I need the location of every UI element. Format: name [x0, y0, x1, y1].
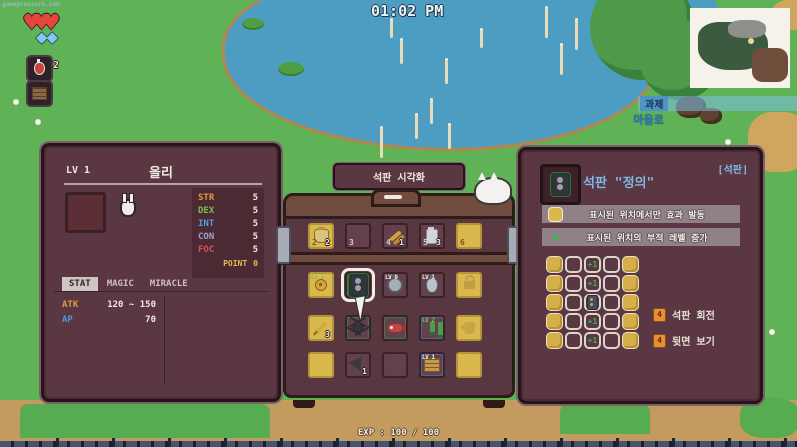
 — [464, 281, 475, 289]
effect-row: 표시된 위치에서만 효과 발동 — [542, 205, 740, 223]
pattern-cell-empty — [603, 256, 620, 273]
inventory-slot-glove[interactable] — [456, 315, 482, 341]
inventory-slot[interactable] — [456, 352, 482, 378]
 — [352, 324, 364, 333]
stat-value: 5 — [253, 218, 258, 231]
reed — [445, 60, 448, 84]
green-dot-icon — [553, 235, 558, 240]
pattern-cell-marked — [622, 256, 639, 273]
tablet-title: 석판 "정의" — [583, 172, 654, 191]
item-level-badge: LV 1 — [311, 274, 323, 281]
stat-row: STR5 — [198, 192, 258, 205]
exp-tick — [392, 438, 395, 447]
crate-slot-button[interactable] — [26, 80, 53, 107]
item-count: 1 — [399, 238, 404, 247]
exp-tick — [280, 438, 283, 447]
view-back-button[interactable]: 4뒷면 보기 — [653, 333, 715, 348]
reed — [480, 30, 483, 48]
pet-rabbit-sprite — [120, 199, 136, 217]
item-level-badge: LV 1 — [422, 274, 434, 281]
tablet-icon — [551, 173, 570, 196]
minimap — [690, 8, 790, 88]
exp-bar — [0, 441, 797, 447]
pattern-cell-marked — [546, 294, 563, 311]
inventory-slot[interactable] — [308, 352, 334, 378]
exp-label: EXP : 100 / 100 — [0, 428, 797, 438]
 — [464, 322, 475, 334]
keybind-icon: 4 — [653, 308, 666, 322]
inventory-row: 3LV 2 — [308, 315, 482, 341]
inventory-row: LV 1LV 0LV 1 — [308, 272, 482, 298]
stat-label: DEX — [198, 205, 214, 218]
reed — [380, 128, 383, 158]
reed — [415, 115, 418, 139]
reed — [545, 8, 548, 38]
stat-row: INT5 — [198, 218, 258, 231]
inventory-slot-boots[interactable]: LV 2 — [419, 315, 445, 341]
tab-miracle[interactable]: MIRACLE — [143, 277, 195, 291]
pattern-cell-marked — [546, 313, 563, 330]
attribute-row: AP70 — [62, 313, 156, 328]
pattern-cell-marked — [546, 332, 563, 349]
pattern-cell-marked — [546, 275, 563, 292]
 — [388, 324, 402, 332]
quest-objective: 마을로 — [633, 111, 663, 127]
item-level-badge: LV 1 — [422, 354, 434, 361]
reed — [390, 20, 393, 38]
tab-stat[interactable]: STAT — [62, 277, 98, 291]
effect-icon-wrap — [542, 235, 568, 240]
inventory-slot-fish[interactable] — [382, 315, 408, 341]
inventory-slot-arrows[interactable]: 41 — [382, 223, 408, 249]
item-count: 3 — [436, 238, 441, 247]
inventory-slot[interactable] — [382, 352, 408, 378]
divider — [164, 296, 165, 384]
inventory-slot-jar[interactable]: 53 — [419, 223, 445, 249]
minimap-dirt — [752, 48, 788, 82]
exp-tick — [616, 438, 619, 447]
inventory-slot-pouch[interactable]: 22 — [308, 223, 334, 249]
pattern-cell-empty — [603, 294, 620, 311]
reed — [560, 45, 563, 75]
exp-tick — [672, 438, 675, 447]
attribute-value: 70 — [145, 313, 156, 328]
stat-label: STR — [198, 192, 214, 205]
chest-handle — [371, 189, 421, 207]
lilypad — [278, 62, 304, 76]
tablet-item-icon-box — [540, 164, 581, 205]
plus-one-label: +1 — [588, 260, 598, 269]
exp-tick — [336, 438, 339, 447]
divider — [64, 183, 262, 185]
watermark: gamepressure.com — [2, 1, 60, 8]
attributes-area: ATK120 ~ 150AP70 — [54, 291, 268, 392]
pattern-cell-empty — [565, 256, 582, 273]
exp-tick — [560, 438, 563, 447]
point-label: POINT — [223, 257, 247, 270]
attribute-row: ATK120 ~ 150 — [62, 298, 156, 313]
tab-magic[interactable]: MAGIC — [100, 277, 141, 291]
reed — [430, 100, 433, 124]
attribute-value: 120 ~ 150 — [107, 298, 156, 313]
pattern-cell-empty — [565, 332, 582, 349]
slot-hotkey: 3 — [349, 238, 354, 247]
effect-text: 표시된 위치에서만 효과 발동 — [568, 208, 740, 221]
pattern-cell-empty — [603, 275, 620, 292]
exp-tick — [784, 438, 787, 447]
lilypad — [242, 18, 264, 30]
lock-icon — [458, 274, 480, 296]
item-count: 1 — [362, 367, 367, 376]
chest-foot — [483, 400, 505, 408]
yellow-slot-icon — [548, 207, 563, 222]
pattern-cell-tablet — [584, 294, 601, 311]
slot-hotkey: 4 — [386, 238, 391, 247]
stat-value: 5 — [253, 231, 258, 244]
inventory-slot-trinket[interactable]: LV 1 — [308, 272, 334, 298]
stat-value: 5 — [253, 192, 258, 205]
slot-hotkey: 6 — [460, 238, 465, 247]
reed — [448, 125, 451, 149]
item-level-badge: LV 0 — [385, 274, 397, 281]
inventory-slot[interactable]: 6 — [456, 223, 482, 249]
stat-label: CON — [198, 231, 214, 244]
stats-box: STR5DEX5INT5CON5FOC5 POINT 0 — [192, 188, 264, 278]
effect-row: 표시된 위치의 부적 레벨 증가 — [542, 228, 740, 246]
stat-row: FOC5 — [198, 244, 258, 257]
minimap-mountain — [728, 20, 766, 38]
exp-tick — [448, 438, 451, 447]
exp-tick — [728, 438, 731, 447]
tablet-detail-panel: 석판 "정의" [석판] 표시된 위치에서만 효과 발동표시된 위치의 부적 레… — [518, 147, 763, 404]
stat-label: FOC — [198, 244, 214, 257]
plus-one-label: +1 — [588, 317, 598, 326]
chest-foot — [293, 400, 315, 408]
inventory-slot-feather[interactable]: 3 — [308, 315, 334, 341]
character-name: 올리 — [44, 162, 278, 181]
button-label: 뒷면 보기 — [672, 333, 715, 348]
minimap-player-dot — [748, 38, 754, 44]
pattern-cell-empty — [603, 313, 620, 330]
slot-hotkey: 5 — [423, 238, 428, 247]
chest-clasp-left — [276, 226, 291, 264]
chest-divider — [280, 252, 518, 265]
stat-label: INT — [198, 218, 214, 231]
game-screen: gamepressure.com ♥♥♥ ◆◆ 2 01:02 PM 과제 마을… — [0, 0, 797, 447]
stat-value: 5 — [253, 205, 258, 218]
inventory-slot-arrowhead[interactable]: 1 — [345, 352, 371, 378]
inventory-slot-crate[interactable]: LV 1 — [419, 352, 445, 378]
inventory-slot-tablet[interactable] — [345, 272, 371, 298]
pattern-cell-plus: +1 — [584, 275, 601, 292]
stat-row: DEX5 — [198, 205, 258, 218]
character-panel: LV 1 올리 STR5DEX5INT5CON5FOC5 POINT 0 STA… — [41, 143, 281, 402]
pattern-cell-empty — [565, 313, 582, 330]
inventory-row: 1LV 1 — [308, 352, 482, 378]
 — [349, 274, 368, 297]
effect-icon-wrap — [542, 207, 568, 222]
pattern-cell-marked — [622, 275, 639, 292]
exp-tick — [168, 438, 171, 447]
cat-sprite — [474, 177, 512, 205]
crate-icon — [32, 87, 47, 100]
pattern-cell-plus: +1 — [584, 313, 601, 330]
reed — [575, 20, 578, 50]
point-value: 0 — [253, 257, 258, 270]
reed — [400, 40, 403, 64]
pattern-cell-plus: +1 — [584, 256, 601, 273]
pattern-cell-marked — [622, 313, 639, 330]
game-clock: 01:02 PM — [371, 2, 471, 20]
attribute-label: ATK — [62, 298, 78, 313]
tablet-icon — [347, 274, 369, 296]
chest-inventory: 22341536LV 1LV 0LV 13LV 21LV 1 — [283, 193, 515, 402]
exp-tick — [56, 438, 59, 447]
pattern-cell-empty — [565, 275, 582, 292]
potion-slot-button[interactable] — [26, 55, 53, 82]
potion-count: 2 — [53, 60, 59, 71]
mini-tablet-icon — [587, 295, 598, 310]
item-level-badge: LV 2 — [422, 317, 434, 324]
exp-tick — [504, 438, 507, 447]
exp-tick — [112, 438, 115, 447]
keybind-icon: 4 — [653, 334, 666, 348]
quest-banner: 과제 — [638, 96, 797, 111]
item-count: 2 — [325, 238, 330, 247]
item-category: [석판] — [718, 161, 748, 176]
attribute-label: AP — [62, 313, 73, 328]
quest-title: 과제 — [640, 96, 668, 111]
pattern-cell-empty — [565, 294, 582, 311]
item-count: 3 — [325, 330, 330, 339]
stat-row: CON5 — [198, 231, 258, 244]
pattern-cell-plus: +1 — [584, 332, 601, 349]
tablet-pattern-grid: +1+1+1+1 — [546, 256, 639, 349]
effect-text: 표시된 위치의 부적 레벨 증가 — [568, 231, 740, 244]
exp-tick — [224, 438, 227, 447]
inventory-slot-medal[interactable]: LV 0 — [382, 272, 408, 298]
potion-icon — [34, 62, 45, 75]
slot-hotkey: 2 — [312, 238, 317, 247]
pattern-cell-marked — [546, 256, 563, 273]
fish-icon — [384, 317, 406, 339]
mana-diamonds: ◆◆ — [36, 26, 57, 48]
glove-icon — [458, 317, 480, 339]
inventory-slot-spider[interactable] — [345, 315, 371, 341]
pattern-cell-marked — [622, 294, 639, 311]
inventory-row: 22341536 — [308, 223, 482, 249]
plus-one-label: +1 — [588, 279, 598, 288]
plus-one-label: +1 — [588, 336, 598, 345]
stat-value: 5 — [253, 244, 258, 257]
rotate-tablet-button[interactable]: 4석판 회전 — [653, 307, 715, 322]
inventory-slot-flask[interactable]: LV 1 — [419, 272, 445, 298]
pattern-cell-marked — [622, 332, 639, 349]
spider-icon — [347, 317, 369, 339]
pattern-cell-empty — [603, 332, 620, 349]
inventory-slot[interactable]: 3 — [345, 223, 371, 249]
button-label: 석판 회전 — [672, 307, 715, 322]
character-portrait-slot[interactable] — [65, 192, 106, 233]
inventory-slot-lock[interactable] — [456, 272, 482, 298]
stat-tabs: STATMAGICMIRACLE — [62, 277, 195, 291]
tablet-visualize-button[interactable]: 석판 시각화 — [333, 163, 465, 190]
